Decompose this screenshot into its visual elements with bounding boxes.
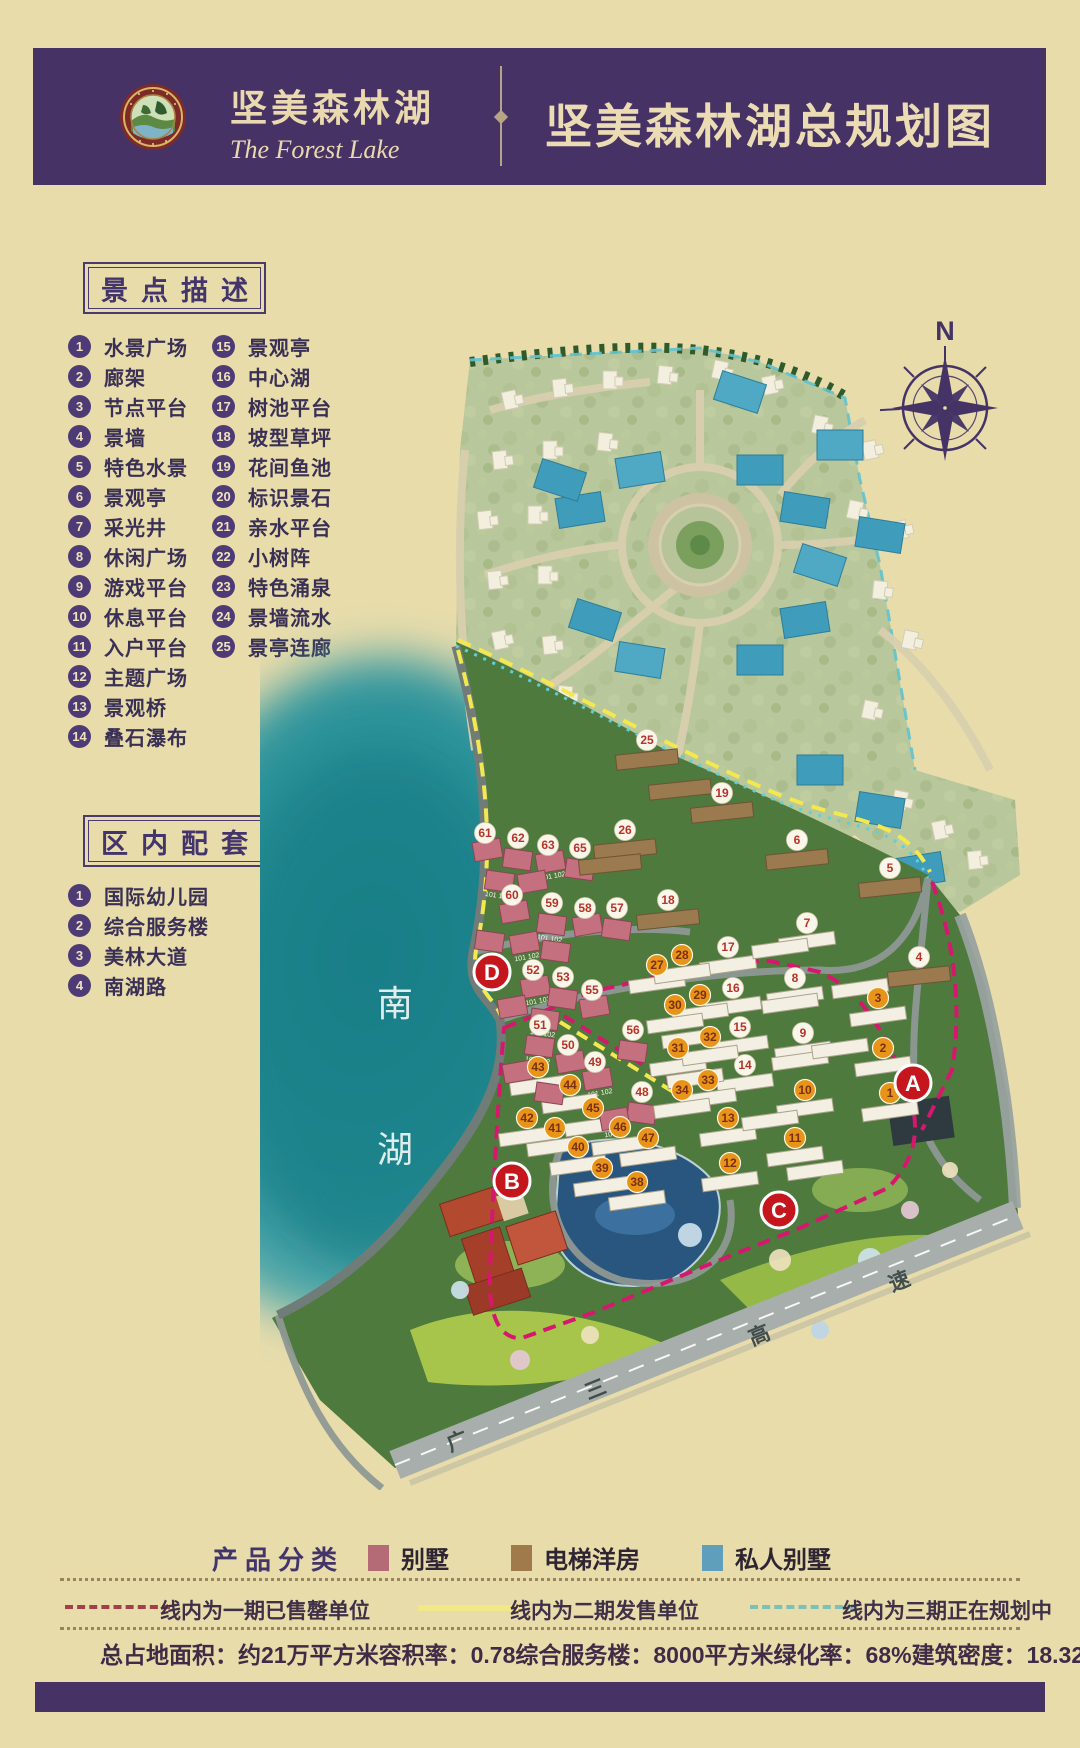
scenic-spots-title: 景点描述 — [83, 262, 266, 314]
unit-badge: 61 — [475, 823, 496, 844]
list-item: 8休闲广场 — [68, 541, 188, 571]
unit-badge: 15 — [730, 1017, 751, 1038]
item-number-badge: 1 — [68, 335, 91, 358]
unit-badge: 46 — [610, 1117, 631, 1138]
list-item: 11入户平台 — [68, 631, 188, 661]
item-number-badge: 24 — [212, 605, 235, 628]
item-number-badge: 7 — [68, 515, 91, 538]
unit-badge: 41 — [545, 1118, 566, 1139]
item-label: 节点平台 — [104, 392, 188, 421]
svg-text:5: 5 — [887, 861, 894, 875]
svg-text:40: 40 — [571, 1140, 585, 1154]
svg-text:44: 44 — [563, 1078, 577, 1092]
item-label: 景观亭 — [104, 482, 167, 511]
svg-text:8: 8 — [792, 971, 799, 985]
svg-text:42: 42 — [520, 1111, 534, 1125]
list-item: 2廊架 — [68, 361, 188, 391]
brand-name-cn: 坚美森林湖 — [230, 78, 435, 132]
list-item: 1国际幼儿园 — [68, 880, 209, 910]
project-stats: 总占地面积：约21万平方米容积率：0.78综合服务楼：8000平方米绿化率：68… — [100, 1636, 980, 1670]
phase-line-sample — [418, 1605, 523, 1611]
zone-marker-C: C — [761, 1192, 797, 1228]
item-label: 美林大道 — [104, 941, 188, 970]
item-label: 主题广场 — [104, 662, 188, 691]
item-number-badge: 16 — [212, 365, 235, 388]
svg-text:48: 48 — [635, 1085, 649, 1099]
svg-text:52: 52 — [526, 963, 540, 977]
item-label: 休闲广场 — [104, 542, 188, 571]
brand-name-en: The Forest Lake — [230, 135, 435, 165]
unit-badge: 5 — [880, 858, 901, 879]
legend-color-swatch — [368, 1545, 389, 1571]
unit-badge: 30 — [665, 995, 686, 1016]
svg-text:33: 33 — [701, 1073, 715, 1087]
list-item: 10休息平台 — [68, 601, 188, 631]
svg-text:61: 61 — [478, 826, 492, 840]
poster-page: 坚美森林湖 The Forest Lake 坚美森林湖总规划图 景点描述 1水景… — [0, 0, 1080, 1748]
unit-badge: 14 — [735, 1055, 756, 1076]
svg-text:60: 60 — [505, 888, 519, 902]
item-label: 国际幼儿园 — [104, 881, 209, 910]
item-number-badge: 9 — [68, 575, 91, 598]
unit-badge: 31 — [668, 1038, 689, 1059]
unit-badge: 18 — [658, 890, 679, 911]
svg-text:43: 43 — [531, 1060, 545, 1074]
brand-logo-icon — [119, 83, 187, 151]
svg-text:4: 4 — [916, 950, 923, 964]
svg-text:1: 1 — [887, 1086, 894, 1100]
unit-badge: 63 — [538, 835, 559, 856]
svg-text:25: 25 — [640, 733, 654, 747]
svg-text:59: 59 — [545, 896, 559, 910]
item-label: 休息平台 — [104, 602, 188, 631]
unit-badge: 57 — [607, 898, 628, 919]
svg-text:63: 63 — [541, 838, 555, 852]
scenic-spots-list-col1: 1水景广场2廊架3节点平台4景墙5特色水景6景观亭7采光井8休闲广场9游戏平台1… — [68, 331, 188, 751]
central-plaza — [648, 493, 752, 597]
brand-lockup: 坚美森林湖 The Forest Lake — [230, 78, 435, 165]
svg-text:10: 10 — [798, 1083, 812, 1097]
list-item: 9游戏平台 — [68, 571, 188, 601]
list-item: 5特色水景 — [68, 451, 188, 481]
svg-text:26: 26 — [618, 823, 632, 837]
legend-color-swatch — [511, 1545, 532, 1571]
svg-text:49: 49 — [588, 1055, 602, 1069]
item-label: 景墙 — [104, 422, 146, 451]
svg-text:19: 19 — [715, 786, 729, 800]
list-item: 1水景广场 — [68, 331, 188, 361]
svg-text:C: C — [771, 1198, 787, 1223]
unit-badge: 16 — [723, 978, 744, 999]
unit-badge: 42 — [517, 1108, 538, 1129]
item-label: 廊架 — [104, 362, 146, 391]
svg-text:38: 38 — [630, 1175, 644, 1189]
unit-badge: 60 — [502, 885, 523, 906]
unit-badge: 9 — [793, 1023, 814, 1044]
item-number-badge: 3 — [68, 944, 91, 967]
unit-badge: 28 — [672, 945, 693, 966]
list-item: 2综合服务楼 — [68, 910, 209, 940]
list-item: 4南湖路 — [68, 970, 209, 1000]
item-number-badge: 1 — [68, 884, 91, 907]
item-number-badge: 12 — [68, 665, 91, 688]
svg-text:14: 14 — [738, 1058, 752, 1072]
svg-text:16: 16 — [726, 981, 740, 995]
legend-color-swatch — [702, 1545, 723, 1571]
svg-text:31: 31 — [671, 1041, 685, 1055]
item-number-badge: 6 — [68, 485, 91, 508]
unit-badge: 38 — [627, 1172, 648, 1193]
unit-badge: 58 — [575, 898, 596, 919]
svg-text:A: A — [905, 1071, 921, 1096]
svg-text:41: 41 — [548, 1121, 562, 1135]
item-number-badge: 2 — [68, 365, 91, 388]
unit-badge: 59 — [542, 893, 563, 914]
legend-item-label: 电梯洋房 — [544, 1540, 640, 1575]
svg-text:51: 51 — [533, 1018, 547, 1032]
svg-text:15: 15 — [733, 1020, 747, 1034]
lake-label: 南 — [377, 983, 413, 1024]
item-number-badge: 3 — [68, 395, 91, 418]
item-number-badge: 8 — [68, 545, 91, 568]
svg-text:B: B — [504, 1169, 520, 1194]
item-number-badge: 5 — [68, 455, 91, 478]
svg-text:17: 17 — [721, 940, 735, 954]
svg-text:57: 57 — [610, 901, 624, 915]
master-plan-map: 101 102101 102101 102101 102101 102101 1… — [260, 330, 1080, 1490]
svg-text:34: 34 — [675, 1083, 689, 1097]
svg-text:D: D — [484, 960, 500, 985]
legend-item: 私人别墅 — [702, 1540, 831, 1575]
unit-badge: 50 — [558, 1035, 579, 1056]
list-item: 12主题广场 — [68, 661, 188, 691]
zone-marker-B: B — [494, 1163, 530, 1199]
lake-label: 湖 — [377, 1129, 413, 1170]
item-number-badge: 10 — [68, 605, 91, 628]
unit-badge: 40 — [568, 1137, 589, 1158]
unit-badge: 33 — [698, 1070, 719, 1091]
item-label: 景观桥 — [104, 692, 167, 721]
unit-badge: 11 — [785, 1128, 806, 1149]
legend-item: 电梯洋房 — [511, 1540, 640, 1575]
unit-badge: 48 — [632, 1082, 653, 1103]
svg-text:46: 46 — [613, 1120, 627, 1134]
unit-badge: 8 — [785, 968, 806, 989]
product-legend-title: 产品分类 — [212, 1540, 344, 1577]
item-label: 南湖路 — [104, 971, 167, 1000]
list-item: 7采光井 — [68, 511, 188, 541]
separator-line — [60, 1627, 1020, 1630]
unit-badge: 3 — [868, 988, 889, 1009]
item-label: 综合服务楼 — [104, 911, 209, 940]
unit-badge: 34 — [672, 1080, 693, 1101]
list-item: 3美林大道 — [68, 940, 209, 970]
svg-text:11: 11 — [789, 1131, 802, 1145]
phase-legend: 线内为一期已售罄单位线内为二期发售单位线内为三期正在规划中 — [0, 1594, 1080, 1620]
stat-item: 绿化率：68% — [774, 1636, 912, 1670]
item-number-badge: 18 — [212, 425, 235, 448]
svg-text:6: 6 — [794, 833, 801, 847]
product-legend: 别墅电梯洋房私人别墅 — [368, 1540, 831, 1575]
legend-item-label: 别墅 — [401, 1540, 449, 1575]
svg-text:7: 7 — [804, 916, 811, 930]
unit-badge: 43 — [528, 1057, 549, 1078]
item-number-badge: 4 — [68, 425, 91, 448]
legend-item-label: 私人别墅 — [735, 1540, 831, 1575]
unit-badge: 51 — [530, 1015, 551, 1036]
zone-marker-D: D — [474, 954, 510, 990]
item-number-badge: 17 — [212, 395, 235, 418]
page-title: 坚美森林湖总规划图 — [545, 88, 995, 157]
svg-text:47: 47 — [641, 1131, 655, 1145]
unit-badge: 25 — [637, 730, 658, 751]
unit-badge: 39 — [592, 1158, 613, 1179]
unit-badge: 19 — [712, 783, 733, 804]
unit-badge: 47 — [638, 1128, 659, 1149]
unit-badge: 55 — [582, 980, 603, 1001]
list-item: 14叠石瀑布 — [68, 721, 188, 751]
svg-text:9: 9 — [800, 1026, 807, 1040]
svg-text:58: 58 — [578, 901, 592, 915]
unit-badge: 27 — [647, 955, 668, 976]
item-number-badge: 23 — [212, 575, 235, 598]
svg-text:56: 56 — [626, 1023, 640, 1037]
svg-text:2: 2 — [880, 1041, 887, 1055]
item-label: 游戏平台 — [104, 572, 188, 601]
item-label: 采光井 — [104, 512, 167, 541]
unit-badge: 7 — [797, 913, 818, 934]
phase-line-sample — [65, 1605, 170, 1609]
item-number-badge: 13 — [68, 695, 91, 718]
separator-line — [60, 1578, 1020, 1581]
item-label: 特色水景 — [104, 452, 188, 481]
item-number-badge: 2 — [68, 914, 91, 937]
amenities-title: 区内配套 — [83, 815, 266, 867]
unit-badge: 17 — [718, 937, 739, 958]
item-number-badge: 4 — [68, 974, 91, 997]
unit-badge: 32 — [700, 1027, 721, 1048]
svg-text:32: 32 — [703, 1030, 717, 1044]
svg-text:62: 62 — [511, 831, 525, 845]
svg-text:65: 65 — [573, 841, 587, 855]
phase-line-sample — [750, 1605, 855, 1609]
svg-text:55: 55 — [585, 983, 599, 997]
svg-text:3: 3 — [875, 991, 882, 1005]
svg-text:39: 39 — [595, 1161, 609, 1175]
svg-text:28: 28 — [675, 948, 689, 962]
svg-text:45: 45 — [586, 1101, 600, 1115]
list-item: 3节点平台 — [68, 391, 188, 421]
unit-badge: 53 — [553, 967, 574, 988]
unit-badge: 10 — [795, 1080, 816, 1101]
unit-badge: 49 — [585, 1052, 606, 1073]
item-label: 水景广场 — [104, 332, 188, 361]
svg-text:29: 29 — [693, 988, 707, 1002]
unit-badge: 13 — [718, 1108, 739, 1129]
item-number-badge: 14 — [68, 725, 91, 748]
header-divider — [500, 66, 502, 166]
zone-marker-A: A — [895, 1065, 931, 1101]
stat-item: 综合服务楼：8000平方米 — [515, 1636, 773, 1670]
item-number-badge: 15 — [212, 335, 235, 358]
item-number-badge: 21 — [212, 515, 235, 538]
phase-label: 线内为二期发售单位 — [510, 1595, 699, 1625]
amenities-list: 1国际幼儿园2综合服务楼3美林大道4南湖路 — [68, 880, 209, 1000]
stat-item: 总占地面积：约21万平方米 — [100, 1636, 379, 1670]
svg-text:27: 27 — [650, 958, 664, 972]
stat-item: 建筑密度：18.32% — [912, 1636, 1080, 1670]
svg-text:18: 18 — [661, 893, 675, 907]
item-number-badge: 25 — [212, 635, 235, 658]
unit-badge: 52 — [523, 960, 544, 981]
item-label: 叠石瀑布 — [104, 722, 188, 751]
stat-item: 容积率：0.78 — [379, 1636, 516, 1670]
item-label: 入户平台 — [104, 632, 188, 661]
unit-badge: 6 — [787, 830, 808, 851]
unit-badge: 26 — [615, 820, 636, 841]
unit-badge: 2 — [873, 1038, 894, 1059]
item-number-badge: 19 — [212, 455, 235, 478]
item-number-badge: 11 — [68, 635, 91, 658]
unit-badge: 12 — [720, 1153, 741, 1174]
footer-bar — [35, 1682, 1045, 1712]
unit-badge: 4 — [909, 947, 930, 968]
svg-text:30: 30 — [668, 998, 682, 1012]
unit-badge: 62 — [508, 828, 529, 849]
svg-text:53: 53 — [556, 970, 570, 984]
unit-badge: 45 — [583, 1098, 604, 1119]
kindergarten-building — [888, 1096, 955, 1146]
list-item: 6景观亭 — [68, 481, 188, 511]
header-banner: 坚美森林湖 The Forest Lake 坚美森林湖总规划图 — [33, 48, 1046, 185]
list-item: 13景观桥 — [68, 691, 188, 721]
item-number-badge: 20 — [212, 485, 235, 508]
phase-label: 线内为一期已售罄单位 — [160, 1595, 370, 1625]
unit-badge: 29 — [690, 985, 711, 1006]
svg-text:12: 12 — [723, 1156, 737, 1170]
svg-text:13: 13 — [721, 1111, 735, 1125]
svg-text:50: 50 — [561, 1038, 575, 1052]
phase-label: 线内为三期正在规划中 — [842, 1595, 1052, 1625]
legend-item: 别墅 — [368, 1540, 449, 1575]
unit-badge: 44 — [560, 1075, 581, 1096]
unit-badge: 56 — [623, 1020, 644, 1041]
list-item: 4景墙 — [68, 421, 188, 451]
item-number-badge: 22 — [212, 545, 235, 568]
unit-badge: 65 — [570, 838, 591, 859]
